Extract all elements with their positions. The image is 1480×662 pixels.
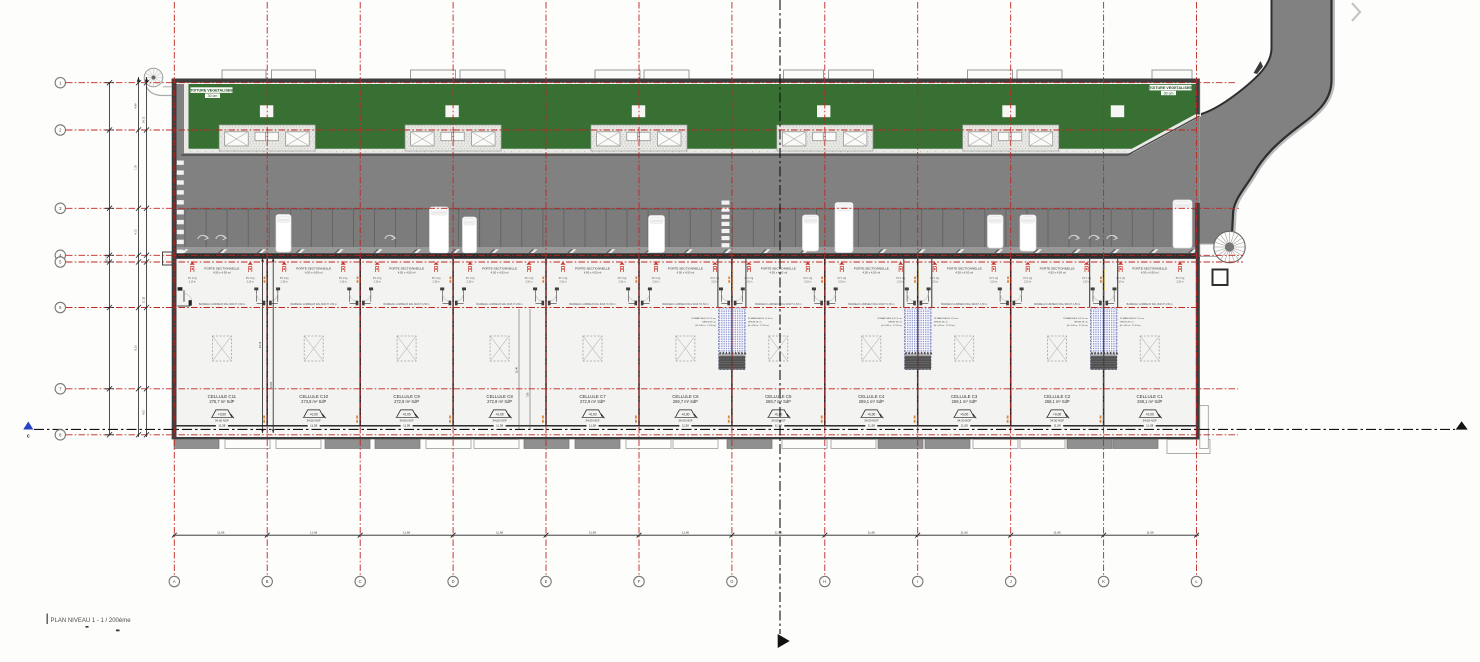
svg-text:4,50 x 4,50 ml: 4,50 x 4,50 ml — [1141, 271, 1159, 275]
svg-text:7,78: 7,78 — [134, 165, 138, 171]
svg-text:BANDEAU LUMINEUX RAL 9016 H 1,: BANDEAU LUMINEUX RAL 9016 H 1,50 m — [569, 303, 615, 306]
svg-text:PV 1 Ug: PV 1 Ug — [989, 278, 998, 280]
svg-text:CELLULE C4: CELLULE C4 — [858, 394, 885, 399]
svg-text:2,10 m: 2,10 m — [618, 281, 625, 283]
svg-text:PV 1 Ug: PV 1 Ug — [246, 278, 255, 280]
svg-text:CELLULE C11: CELLULE C11 — [208, 394, 237, 399]
svg-text:(H: 4,36 m - 17,50 m): (H: 4,36 m - 17,50 m) — [881, 325, 902, 327]
svg-text:+0,00: +0,00 — [218, 413, 226, 417]
svg-text:11,58: 11,58 — [496, 423, 503, 427]
svg-text:CELLULE C8: CELLULE C8 — [486, 394, 513, 399]
svg-text:9,07: 9,07 — [142, 409, 146, 415]
svg-text:4,50 x 4,50 ml: 4,50 x 4,50 ml — [677, 271, 695, 275]
svg-text:4,50 x 4,50 ml: 4,50 x 4,50 ml — [398, 271, 416, 275]
svg-text:BANDEAU LUMINEUX RAL 9016 H 1,: BANDEAU LUMINEUX RAL 9016 H 1,50 m — [1034, 303, 1080, 306]
svg-text:GIRON 28 cm: GIRON 28 cm — [748, 321, 762, 323]
svg-text:PV 1 Ug: PV 1 Ug — [896, 278, 905, 280]
svg-text:GIRON 28 cm: GIRON 28 cm — [702, 321, 716, 323]
svg-text:TOITURE VEGETALISEE: TOITURE VEGETALISEE — [1149, 86, 1192, 90]
svg-text:11,66: 11,66 — [682, 531, 690, 535]
svg-text:2,10 m: 2,10 m — [559, 281, 566, 283]
svg-text:D: D — [452, 579, 455, 584]
svg-text:+0,00: +0,00 — [1146, 413, 1154, 417]
svg-text:11,58: 11,58 — [403, 423, 410, 427]
svg-text:17,35: 17,35 — [142, 296, 146, 303]
svg-text:2,10 m: 2,10 m — [990, 281, 997, 283]
svg-text:2,10 m: 2,10 m — [189, 281, 196, 283]
svg-text:2,10 m: 2,10 m — [467, 281, 474, 283]
svg-text:4,50 x 4,50 ml: 4,50 x 4,50 ml — [1048, 271, 1066, 275]
svg-text:B: B — [266, 579, 269, 584]
svg-text:(H: 4,36 m - 17,50 m): (H: 4,36 m - 17,50 m) — [1120, 325, 1141, 327]
svg-text:35,21: 35,21 — [105, 254, 109, 261]
svg-text:11,58: 11,58 — [961, 423, 968, 427]
svg-text:(H: 4,36 m - 17,50 m): (H: 4,36 m - 17,50 m) — [934, 325, 955, 327]
svg-text:269,7 m² SdP: 269,7 m² SdP — [766, 399, 791, 404]
svg-text:GIRON 28 cm: GIRON 28 cm — [1074, 321, 1088, 323]
svg-text:269,1 m² SdP: 269,1 m² SdP — [952, 399, 977, 404]
svg-text:4,50 x 4,50 ml: 4,50 x 4,50 ml — [213, 271, 231, 275]
svg-text:CELLULE C5: CELLULE C5 — [765, 394, 792, 399]
svg-text:PV 1 Ug: PV 1 Ug — [525, 278, 534, 280]
svg-text:11,58: 11,58 — [310, 423, 317, 427]
svg-text:272,9 m² SdP: 272,9 m² SdP — [580, 399, 605, 404]
svg-text:2,10 m: 2,10 m — [525, 281, 532, 283]
svg-text:PV 1 Ug: PV 1 Ug — [432, 278, 441, 280]
svg-text:2,10 m: 2,10 m — [897, 281, 904, 283]
svg-text:(H: 4,36 m - 17,50 m): (H: 4,36 m - 17,50 m) — [1067, 325, 1088, 327]
svg-text:34,00 NGF: 34,00 NGF — [678, 419, 692, 423]
svg-text:11,58: 11,58 — [868, 423, 875, 427]
svg-text:2,10 m: 2,10 m — [1176, 281, 1183, 283]
svg-text:11,66: 11,66 — [868, 531, 876, 535]
svg-text:CELLULE C2: CELLULE C2 — [1044, 394, 1071, 399]
svg-text:25 MARCHES H 17,4 cm: 25 MARCHES H 17,4 cm — [877, 317, 902, 320]
svg-text:25 MARCHES H 17,4 cm: 25 MARCHES H 17,4 cm — [1063, 317, 1088, 320]
svg-text:11,66: 11,66 — [961, 531, 969, 535]
svg-text:2,10 m: 2,10 m — [374, 281, 381, 283]
svg-text:CELLULE C6: CELLULE C6 — [672, 394, 699, 399]
svg-text:2,10 m: 2,10 m — [247, 281, 254, 283]
svg-text:PV 1 Ug: PV 1 Ug — [804, 278, 813, 280]
svg-text:CELLULE C1: CELLULE C1 — [1137, 394, 1164, 399]
svg-text:+0,00: +0,00 — [960, 413, 968, 417]
svg-text:PV 1 Ug: PV 1 Ug — [711, 278, 720, 280]
svg-text:4,50 x 4,50 ml: 4,50 x 4,50 ml — [491, 271, 509, 275]
svg-text:CELLULE C10: CELLULE C10 — [299, 394, 328, 399]
svg-text:2,10 m: 2,10 m — [340, 281, 347, 283]
svg-text:4,49: 4,49 — [134, 103, 138, 109]
svg-text:GIRON 28 cm: GIRON 28 cm — [1120, 321, 1134, 323]
svg-text:30 cm: 30 cm — [1164, 91, 1174, 95]
svg-text:25 MARCHES H 17,4 cm: 25 MARCHES H 17,4 cm — [934, 317, 959, 320]
svg-text:269,1 m² SdP: 269,1 m² SdP — [1137, 399, 1162, 404]
svg-text:c: c — [27, 434, 30, 440]
svg-text:8,13: 8,13 — [134, 345, 138, 351]
svg-text:4,50 x 4,50 ml: 4,50 x 4,50 ml — [584, 271, 602, 275]
svg-text:GIRON 28 cm: GIRON 28 cm — [934, 321, 948, 323]
svg-text:44,79: 44,79 — [258, 341, 262, 348]
svg-text:34,00 NGF: 34,00 NGF — [215, 419, 229, 423]
svg-text:BANDEAU LUMINEUX RAL 9016 H 1,: BANDEAU LUMINEUX RAL 9016 H 1,50 m — [662, 303, 708, 306]
svg-text:A: A — [173, 579, 176, 584]
svg-text:PV 1 Ug: PV 1 Ug — [339, 278, 348, 280]
svg-text:34,00 NGF: 34,00 NGF — [307, 419, 321, 423]
svg-text:4,50 x 4,50 ml: 4,50 x 4,50 ml — [863, 271, 881, 275]
svg-text:34,00 NGF: 34,00 NGF — [771, 419, 785, 423]
svg-text:BANDEAU LUMINEUX RAL 9016 H 1,: BANDEAU LUMINEUX RAL 9016 H 1,50 m — [755, 303, 801, 306]
svg-text:34,00 NGF: 34,00 NGF — [400, 419, 414, 423]
svg-text:I: I — [917, 579, 918, 584]
svg-text:+0,00: +0,00 — [588, 413, 596, 417]
svg-text:2,10 m: 2,10 m — [281, 281, 288, 283]
svg-text:34,00 NGF: 34,00 NGF — [585, 419, 599, 423]
svg-text:11,58: 11,58 — [682, 423, 689, 427]
svg-text:+0,00: +0,00 — [1053, 413, 1061, 417]
svg-text:G: G — [730, 579, 733, 584]
svg-text:11,40: 11,40 — [515, 366, 519, 373]
svg-text:30 cm: 30 cm — [208, 94, 218, 98]
svg-text:+0,00: +0,00 — [681, 413, 689, 417]
svg-text:11,66: 11,66 — [1053, 531, 1061, 535]
svg-text:2,10 m: 2,10 m — [804, 281, 811, 283]
svg-text:11,66: 11,66 — [217, 531, 225, 535]
svg-text:11,58: 11,58 — [589, 423, 596, 427]
svg-text:34,00 NGF: 34,00 NGF — [864, 419, 878, 423]
svg-text:4,50 x 4,50 ml: 4,50 x 4,50 ml — [305, 271, 323, 275]
svg-text:PLAN NIVEAU 1 - 1 / 200ème: PLAN NIVEAU 1 - 1 / 200ème — [51, 618, 132, 624]
svg-text:11,58: 11,58 — [218, 423, 225, 427]
svg-text:PV 1 Ug: PV 1 Ug — [1023, 278, 1032, 280]
svg-text:269,1 m² SdP: 269,1 m² SdP — [1045, 399, 1070, 404]
svg-text:11,66: 11,66 — [310, 531, 318, 535]
svg-text:34,00 NGF: 34,00 NGF — [1050, 419, 1064, 423]
svg-text:2,10 m: 2,10 m — [652, 281, 659, 283]
svg-text:272,9 m² SdP: 272,9 m² SdP — [394, 399, 419, 404]
svg-text:11,66: 11,66 — [775, 531, 783, 535]
svg-text:4,50 x 4,50 ml: 4,50 x 4,50 ml — [955, 271, 973, 275]
svg-text:TOITURE VEGETALISEE: TOITURE VEGETALISEE — [190, 89, 233, 93]
svg-text:C: C — [359, 579, 362, 584]
svg-text:K: K — [1102, 579, 1105, 584]
svg-text:34,00 NGF: 34,00 NGF — [957, 419, 971, 423]
svg-text:2,10 m: 2,10 m — [433, 281, 440, 283]
svg-text:34,00 NGF: 34,00 NGF — [493, 419, 507, 423]
svg-text:269,7 m² SdP: 269,7 m² SdP — [673, 399, 698, 404]
svg-text:2,10 m: 2,10 m — [1024, 281, 1031, 283]
svg-text:11,58: 11,58 — [1054, 423, 1061, 427]
svg-text:CELLULE C9: CELLULE C9 — [393, 394, 420, 399]
svg-text:25 MARCHES H 17,4 cm: 25 MARCHES H 17,4 cm — [1120, 317, 1145, 320]
svg-text:+0,00: +0,00 — [867, 413, 875, 417]
svg-text:(H: 4,36 m - 17,50 m): (H: 4,36 m - 17,50 m) — [695, 325, 716, 327]
svg-text:PV 1 Ug: PV 1 Ug — [280, 278, 289, 280]
svg-text:PV 1 Ug: PV 1 Ug — [559, 278, 568, 280]
svg-text:275,7 m² SdP: 275,7 m² SdP — [209, 399, 234, 404]
svg-text:BANDEAU LUMINEUX RAL 9016 H 1,: BANDEAU LUMINEUX RAL 9016 H 1,50 m — [1127, 303, 1173, 306]
svg-text:+0,00: +0,00 — [774, 413, 782, 417]
svg-text:4,50 x 4,50 ml: 4,50 x 4,50 ml — [770, 271, 788, 275]
svg-text:11,66: 11,66 — [496, 531, 504, 535]
svg-text:2,10 m: 2,10 m — [838, 281, 845, 283]
svg-text:272,9 m² SdP: 272,9 m² SdP — [487, 399, 512, 404]
svg-text:14,81: 14,81 — [269, 381, 273, 388]
svg-text:11,58: 11,58 — [775, 423, 782, 427]
svg-text:+0,00: +0,00 — [310, 413, 318, 417]
svg-text:+0,00: +0,00 — [403, 413, 411, 417]
svg-text:F: F — [638, 579, 641, 584]
svg-text:34,00 NGF: 34,00 NGF — [1143, 419, 1157, 423]
svg-text:PV 1 Ug: PV 1 Ug — [652, 278, 661, 280]
svg-text:GIRON 28 cm: GIRON 28 cm — [888, 321, 902, 323]
svg-text:11,66: 11,66 — [403, 531, 411, 535]
svg-text:25 MARCHES H 17,4 cm: 25 MARCHES H 17,4 cm — [691, 317, 716, 320]
svg-text:PV 1 Ug: PV 1 Ug — [188, 278, 197, 280]
svg-text:269,1 m² SdP: 269,1 m² SdP — [859, 399, 884, 404]
svg-text:CELLULE C7: CELLULE C7 — [579, 394, 606, 399]
svg-text:BANDEAU LUMINEUX RAL 9016 H 1,: BANDEAU LUMINEUX RAL 9016 H 1,50 m — [291, 303, 337, 306]
svg-text:E: E — [545, 579, 548, 584]
svg-text:PV 1 Ug: PV 1 Ug — [1176, 278, 1185, 280]
svg-text:11,58: 11,58 — [1146, 423, 1153, 427]
svg-text:PV 1 Ug: PV 1 Ug — [618, 278, 627, 280]
svg-text:(H: 4,36 m - 17,50 m): (H: 4,36 m - 17,50 m) — [748, 325, 769, 327]
svg-text:14,72: 14,72 — [142, 116, 146, 123]
svg-text:+0,00: +0,00 — [496, 413, 504, 417]
svg-text:2,10 m: 2,10 m — [1083, 281, 1090, 283]
svg-text:J: J — [1010, 579, 1012, 584]
svg-text:BANDEAU LUMINEUX RAL 9016 H 1,: BANDEAU LUMINEUX RAL 9016 H 1,50 m — [384, 303, 430, 306]
svg-text:11,66: 11,66 — [1146, 531, 1154, 535]
svg-text:PV 1 Ug: PV 1 Ug — [1082, 278, 1091, 280]
svg-text:PV 1 Ug: PV 1 Ug — [838, 278, 847, 280]
svg-text:H: H — [823, 579, 826, 584]
svg-text:BANDEAU LUMINEUX RAL 9016 H 1,: BANDEAU LUMINEUX RAL 9016 H 1,50 m — [477, 303, 523, 306]
svg-text:BANDEAU LUMINEUX RAL 9016 H 1,: BANDEAU LUMINEUX RAL 9016 H 1,50 m — [199, 303, 245, 306]
svg-text:4,72: 4,72 — [134, 229, 138, 235]
svg-text:25 MARCHES H 17,4 cm: 25 MARCHES H 17,4 cm — [748, 317, 773, 320]
svg-text:11,66: 11,66 — [589, 531, 597, 535]
svg-text:BANDEAU LUMINEUX RAL 9016 H 1,: BANDEAU LUMINEUX RAL 9016 H 1,50 m — [848, 303, 894, 306]
svg-text:273,8 m² SdP: 273,8 m² SdP — [301, 399, 326, 404]
svg-text:7,95: 7,95 — [526, 392, 530, 398]
svg-text:PV 1 Ug: PV 1 Ug — [373, 278, 382, 280]
svg-text:PV 1 Ug: PV 1 Ug — [466, 278, 475, 280]
svg-text:BANDEAU LUMINEUX RAL 9016 H 1,: BANDEAU LUMINEUX RAL 9016 H 1,50 m — [941, 303, 987, 306]
svg-text:2,10 m: 2,10 m — [745, 281, 752, 283]
svg-text:CELLULE C3: CELLULE C3 — [951, 394, 978, 399]
